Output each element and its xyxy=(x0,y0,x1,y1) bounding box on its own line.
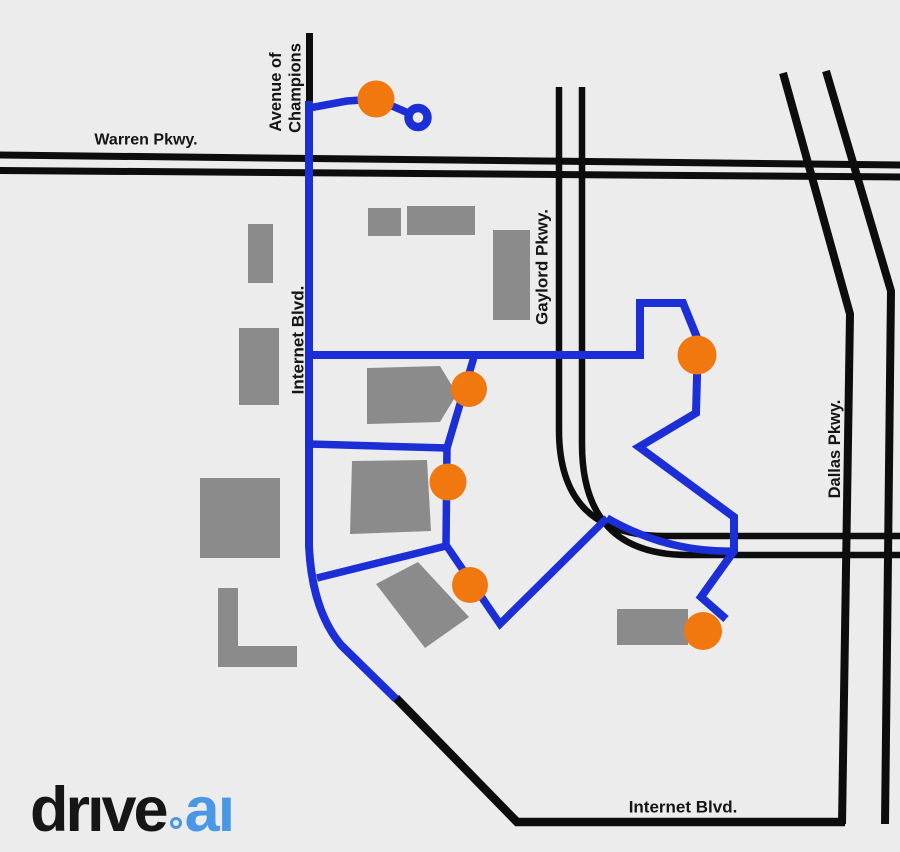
route-map-page: { "page": { "background": "#ececec" }, "… xyxy=(0,0,900,852)
label-avenue-of-champions-line2: Champions xyxy=(287,43,305,133)
logo-word: drıve xyxy=(30,775,166,845)
building-pentagon xyxy=(367,366,457,424)
stop-marker xyxy=(678,336,717,375)
drive-ai-logo: drıveaı xyxy=(30,779,233,842)
label-warren-pkwy: Warren Pkwy. xyxy=(94,132,197,149)
stop-marker xyxy=(451,371,487,407)
building xyxy=(239,328,279,405)
building xyxy=(200,478,280,558)
label-dallas-pkwy: Dallas Pkwy. xyxy=(826,400,844,499)
building xyxy=(368,208,401,236)
route-map: Warren Pkwy. Avenue of Champions Interne… xyxy=(0,0,900,852)
label-gaylord-pkwy: Gaylord Pkwy. xyxy=(533,209,552,325)
building xyxy=(248,224,273,283)
stop-marker xyxy=(452,567,488,603)
building xyxy=(617,609,688,645)
label-internet-blvd-south: Internet Blvd. xyxy=(629,798,738,817)
stop-marker xyxy=(358,81,395,118)
logo-dot-icon xyxy=(170,817,182,829)
stop-marker xyxy=(684,612,722,650)
route-cross-street xyxy=(309,444,447,448)
building xyxy=(350,460,431,534)
label-avenue-of-champions-line1: Avenue of xyxy=(267,52,285,132)
stop-marker xyxy=(430,464,467,501)
logo-tld: aı xyxy=(185,775,234,845)
building xyxy=(407,206,475,235)
label-internet-blvd-west: Internet Blvd. xyxy=(289,286,308,395)
building xyxy=(493,230,530,320)
